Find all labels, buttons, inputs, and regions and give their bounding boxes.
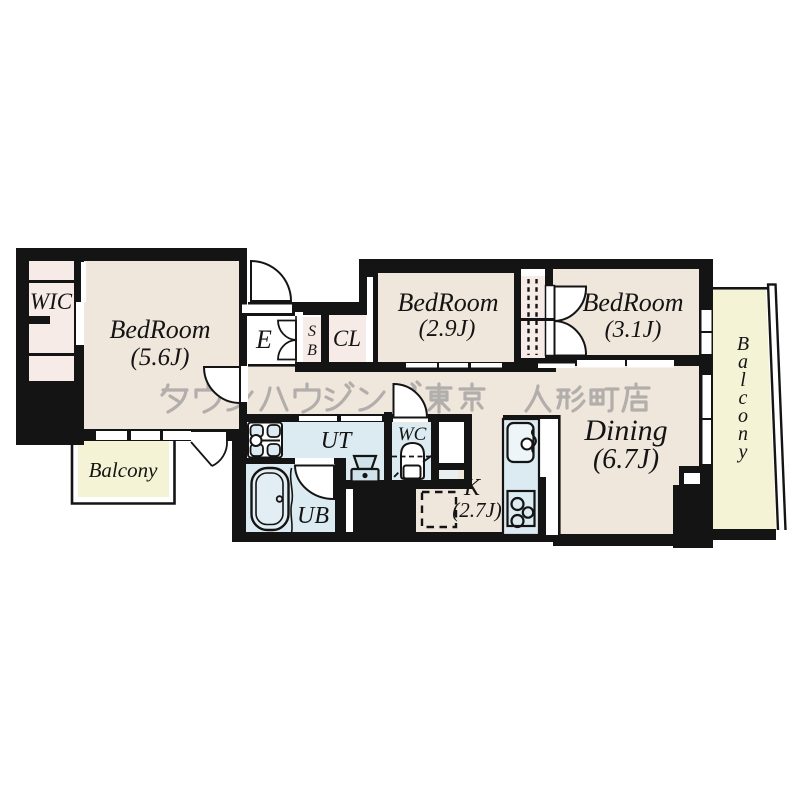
svg-text:BedRoom: BedRoom <box>397 288 498 317</box>
svg-text:UT: UT <box>321 428 353 454</box>
svg-text:(3.1J): (3.1J) <box>605 317 662 343</box>
svg-text:y: y <box>737 441 748 463</box>
svg-text:UB: UB <box>297 503 329 529</box>
svg-text:(2.9J): (2.9J) <box>419 316 476 342</box>
svg-text:S: S <box>308 323 316 340</box>
svg-text:WIC: WIC <box>30 289 73 314</box>
svg-text:(2.7J): (2.7J) <box>452 498 502 522</box>
svg-text:BedRoom: BedRoom <box>582 288 683 317</box>
svg-text:(6.7J): (6.7J) <box>593 444 659 475</box>
svg-text:Balcony: Balcony <box>89 458 158 482</box>
svg-text:CL: CL <box>333 326 361 351</box>
svg-text:WC: WC <box>398 424 427 445</box>
svg-text:B: B <box>307 342 317 359</box>
svg-text:(5.6J): (5.6J) <box>131 344 190 371</box>
svg-text:E: E <box>255 325 272 354</box>
svg-text:Dining: Dining <box>583 414 667 447</box>
svg-text:BedRoom: BedRoom <box>109 315 210 344</box>
